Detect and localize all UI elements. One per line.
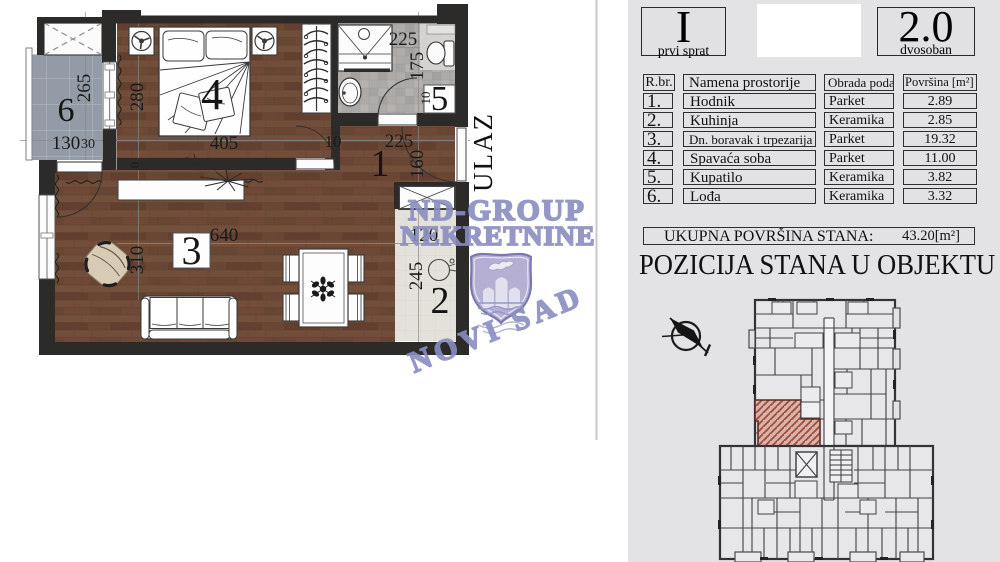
svg-text:3: 3 (182, 228, 202, 273)
svg-text:225: 225 (385, 131, 414, 152)
svg-text:10: 10 (418, 92, 433, 105)
svg-text:265: 265 (74, 74, 95, 103)
svg-text:310: 310 (127, 246, 148, 275)
svg-text:640: 640 (210, 225, 239, 246)
svg-text:10: 10 (325, 132, 342, 151)
svg-text:4: 4 (201, 70, 223, 119)
svg-text:5: 5 (431, 79, 449, 118)
svg-text:NEKRETNINE: NEKRETNINE (401, 220, 596, 251)
svg-text:405: 405 (210, 133, 239, 154)
svg-text:2: 2 (431, 280, 450, 322)
svg-text:245: 245 (406, 262, 427, 291)
svg-text:ULAZ: ULAZ (468, 112, 498, 192)
svg-text:280: 280 (127, 83, 148, 112)
svg-text:175: 175 (407, 52, 428, 81)
svg-text:30: 30 (81, 137, 95, 152)
svg-text:160: 160 (407, 150, 428, 179)
svg-text:130: 130 (52, 133, 81, 154)
svg-text:0: 0 (127, 162, 142, 169)
svg-text:225: 225 (389, 29, 418, 50)
svg-text:6: 6 (58, 92, 75, 129)
